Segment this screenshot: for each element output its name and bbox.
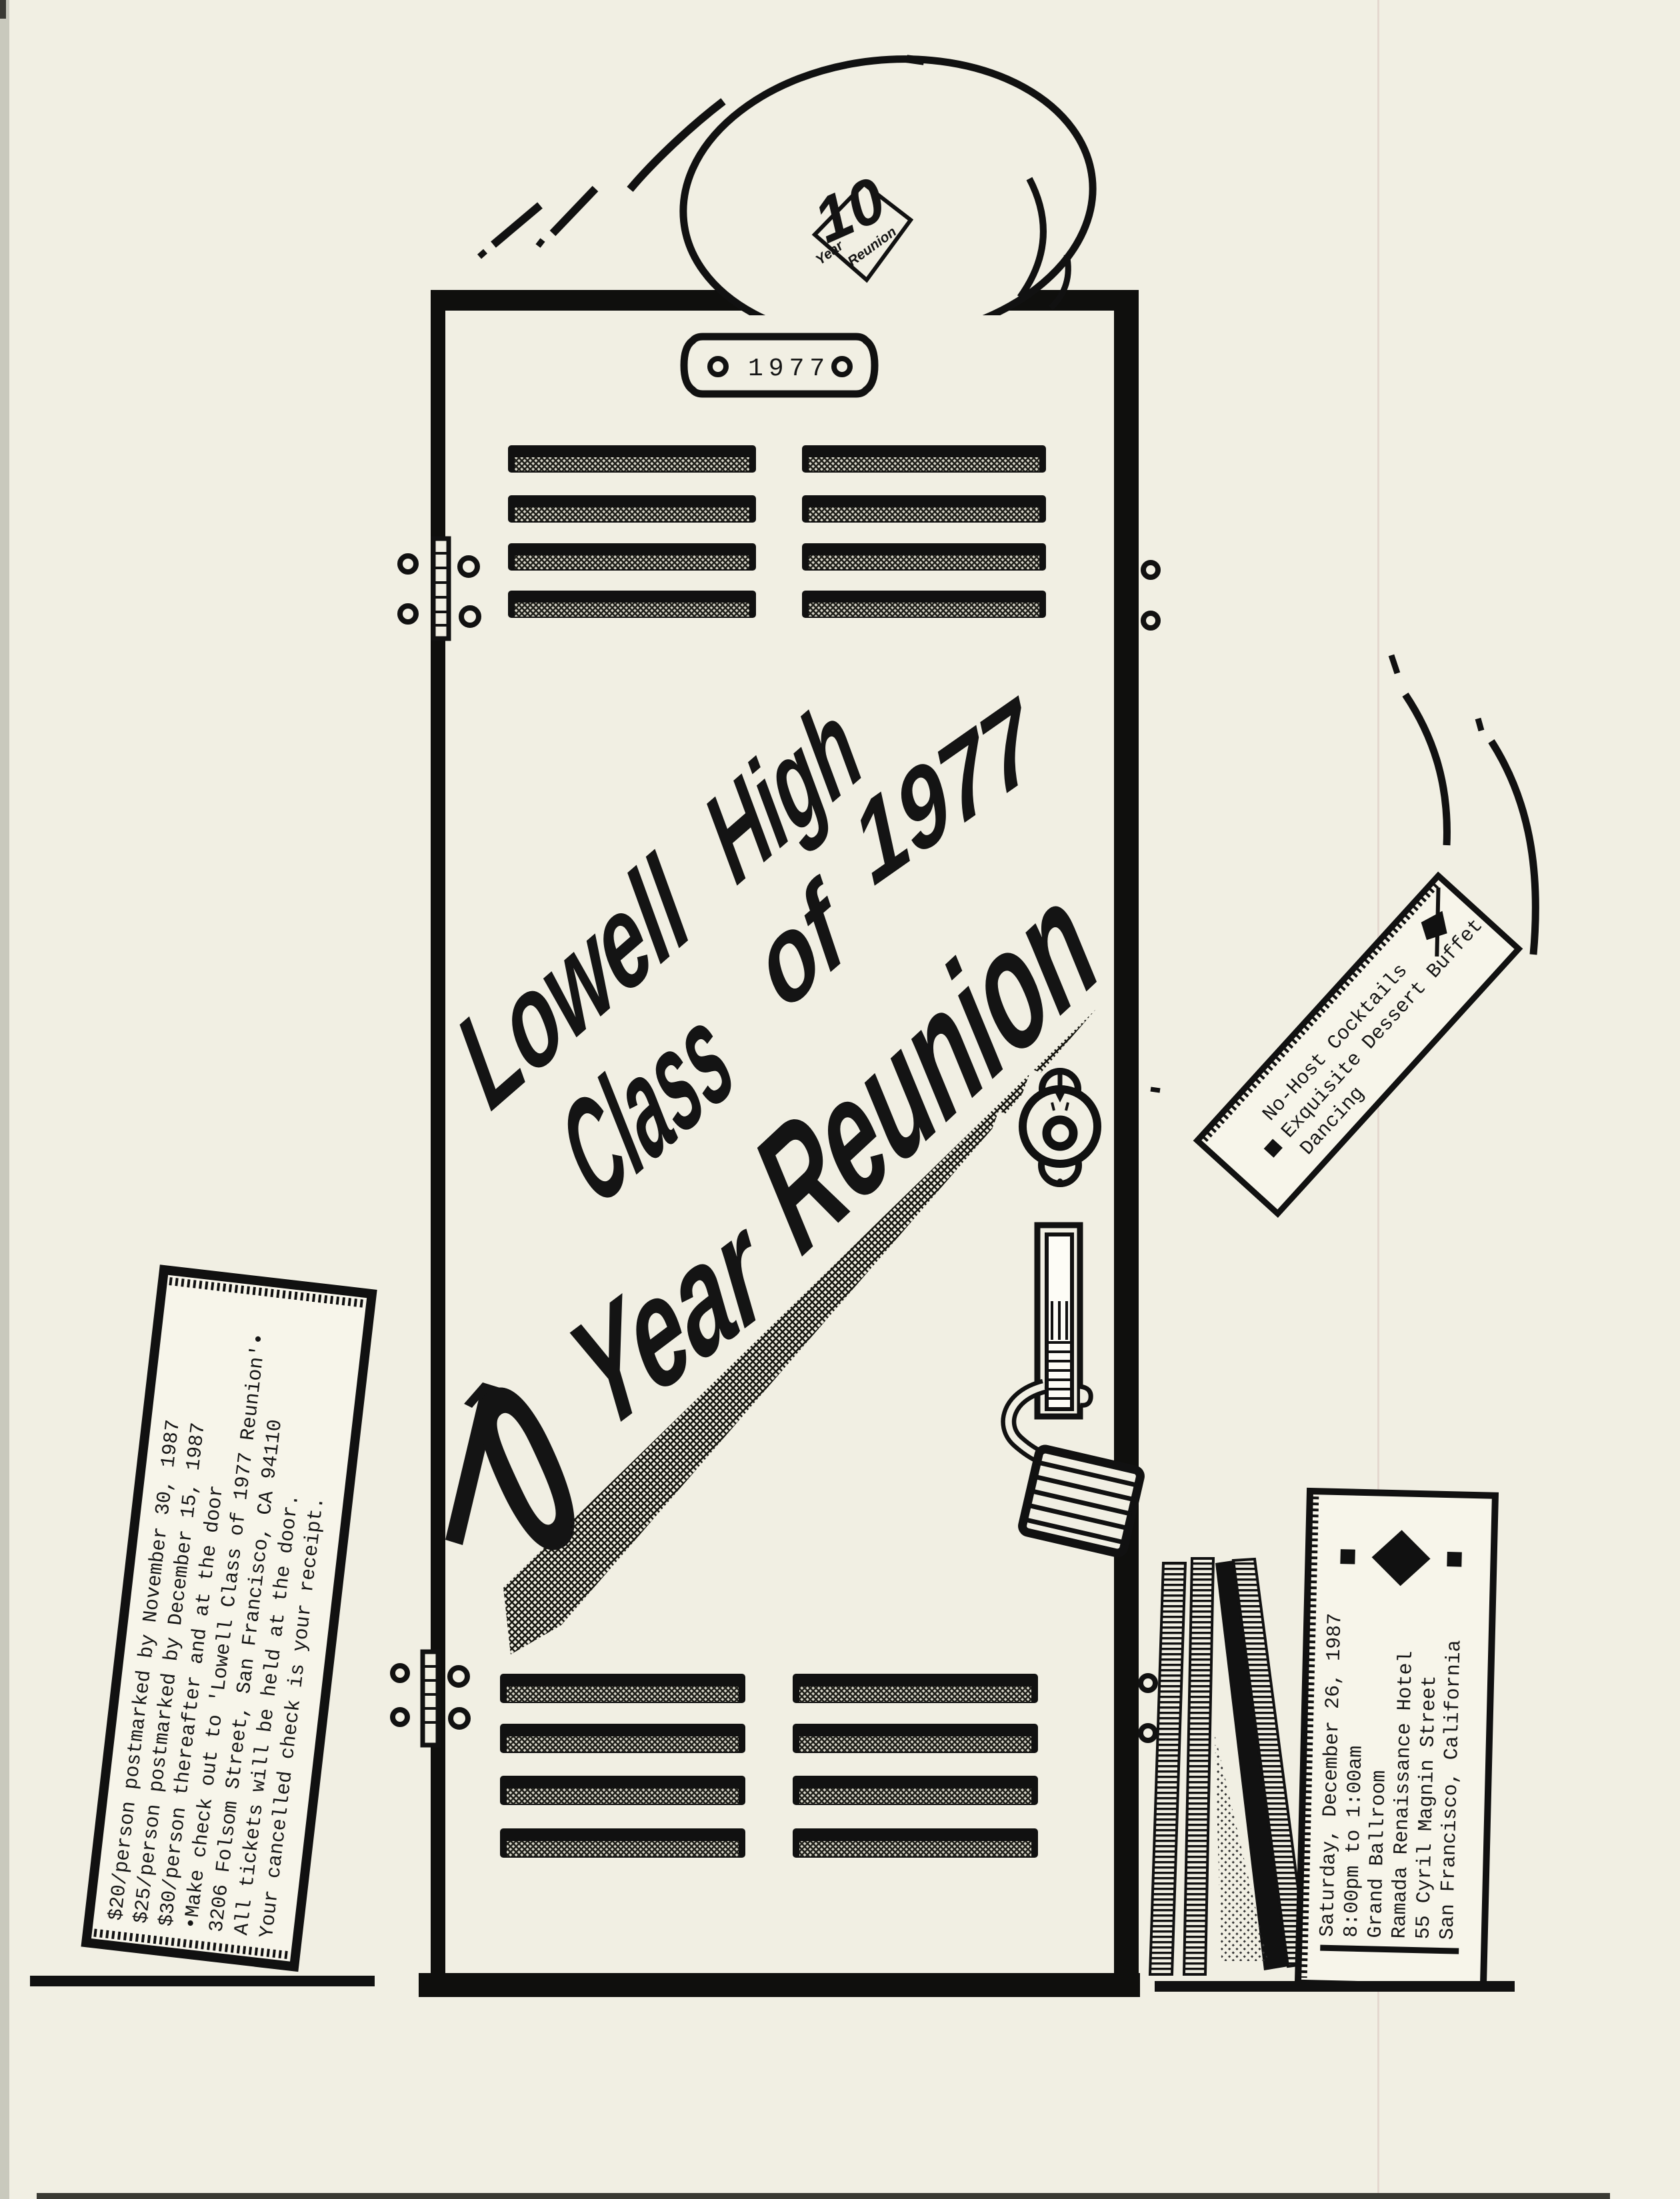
svg-text:8:00pm to 1:00am: 8:00pm to 1:00am	[1341, 1745, 1368, 1938]
svg-text:1977: 1977	[748, 355, 830, 383]
svg-text:Grand Ballroom: Grand Ballroom	[1365, 1770, 1391, 1938]
